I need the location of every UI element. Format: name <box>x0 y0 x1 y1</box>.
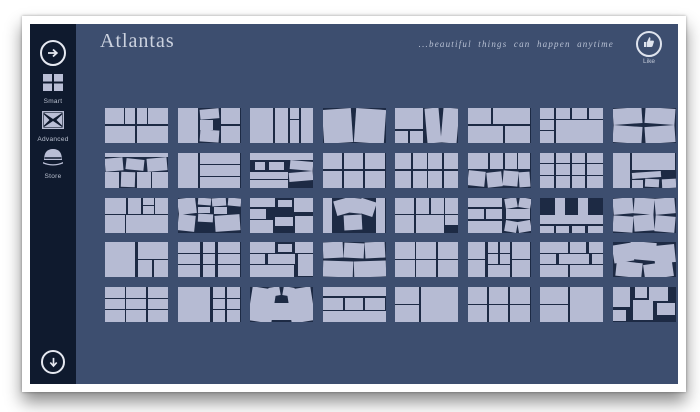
layout-cell <box>344 243 365 259</box>
layout-cell <box>445 215 458 224</box>
layout-cell <box>323 260 354 277</box>
layout-cell <box>444 171 458 188</box>
layout-cell <box>540 287 568 303</box>
layout-cell <box>518 153 531 169</box>
layout-cell <box>556 226 569 233</box>
layout-cell <box>540 254 556 265</box>
collage-layout-tile-layout-30[interactable] <box>468 242 531 277</box>
layout-cell <box>105 157 124 171</box>
layout-cell <box>275 108 288 143</box>
collage-layout-tile-layout-13[interactable] <box>395 153 458 188</box>
layout-cell <box>645 108 676 125</box>
layout-cell <box>503 170 519 187</box>
layout-cell <box>468 198 503 208</box>
collage-layout-tile-layout-33[interactable] <box>105 287 168 322</box>
layout-cell <box>178 108 198 143</box>
layout-cell <box>138 260 152 277</box>
layout-cell <box>376 198 385 233</box>
dome-icon <box>42 147 64 171</box>
collage-layout-tile-layout-07[interactable] <box>540 108 603 143</box>
layout-cell <box>512 260 530 277</box>
layout-cell <box>488 265 510 277</box>
layout-cell <box>588 226 603 233</box>
layout-cell <box>570 242 586 253</box>
layout-cell <box>200 153 241 164</box>
collage-layout-tile-layout-28[interactable] <box>323 242 386 277</box>
layout-cell <box>416 215 444 232</box>
layout-cell <box>250 153 313 160</box>
layout-cell <box>200 165 241 176</box>
layout-cell <box>613 287 631 307</box>
layout-cell <box>559 254 589 265</box>
layout-cell <box>468 242 486 258</box>
layout-cell <box>323 311 386 322</box>
layout-cell <box>275 217 293 225</box>
layout-cell <box>105 287 125 298</box>
layout-cell <box>250 172 288 179</box>
collage-layout-tile-layout-23[interactable] <box>540 198 603 233</box>
collage-layout-tile-layout-21[interactable] <box>395 198 458 233</box>
layout-cell <box>105 215 125 232</box>
layout-cell <box>138 242 168 258</box>
layout-cell <box>301 108 313 143</box>
app-window: Smart Advanced <box>22 16 686 392</box>
layout-cell <box>294 198 313 212</box>
layout-cell <box>152 172 168 187</box>
layout-cell <box>633 215 654 233</box>
sidebar-item-label: Advanced <box>37 136 68 143</box>
layout-cell <box>578 198 588 216</box>
collage-layout-tile-layout-40[interactable] <box>613 287 676 322</box>
layout-cell <box>395 131 408 143</box>
layout-cell <box>199 108 219 119</box>
layout-cell <box>661 178 675 187</box>
layout-cell <box>295 242 313 253</box>
layout-cell <box>468 170 486 187</box>
layout-cell <box>540 153 554 164</box>
layout-cell <box>519 171 531 186</box>
layout-cell <box>178 287 211 322</box>
layout-cell <box>613 153 630 188</box>
layout-cell <box>540 131 554 143</box>
layout-cell <box>653 244 675 264</box>
layout-cell <box>250 180 288 188</box>
layout-cell <box>148 299 168 310</box>
collage-layout-tile-layout-03[interactable] <box>250 108 313 143</box>
layout-cell <box>468 153 489 169</box>
layout-cell <box>227 287 240 298</box>
like-button[interactable]: Like <box>634 31 664 65</box>
collage-layout-tile-layout-01[interactable] <box>105 108 168 143</box>
collage-layout-tile-layout-02[interactable] <box>178 108 241 143</box>
layout-cell <box>395 242 415 258</box>
layout-cell <box>255 162 265 170</box>
layout-cell <box>395 287 419 303</box>
sidebar-item-smart[interactable]: Smart <box>30 74 76 105</box>
layout-cell <box>227 299 240 310</box>
layout-cell <box>155 198 168 214</box>
layout-cell <box>218 265 241 277</box>
layout-cell <box>197 214 212 222</box>
layout-cell <box>587 176 603 188</box>
layout-cell <box>468 209 484 220</box>
layout-cell <box>657 303 676 315</box>
layout-cell <box>395 305 419 322</box>
layout-cell <box>365 171 385 188</box>
collage-layout-tile-layout-18[interactable] <box>178 198 241 233</box>
layout-cell <box>213 299 226 310</box>
layout-cell <box>613 310 627 322</box>
layout-cell <box>416 260 436 277</box>
layout-cell <box>395 198 414 214</box>
layout-cell <box>645 179 659 188</box>
layout-gallery <box>105 108 676 322</box>
arrow-right-icon <box>47 47 59 59</box>
collage-layout-tile-layout-10[interactable] <box>178 153 241 188</box>
layout-cell <box>148 310 168 322</box>
layout-cell <box>126 215 168 232</box>
layout-cell <box>655 198 676 215</box>
bowtie-icon <box>42 111 64 134</box>
collage-layout-tile-layout-37[interactable] <box>395 287 458 322</box>
layout-cell <box>655 215 676 232</box>
layout-cell <box>468 260 486 277</box>
layout-cell <box>128 198 141 214</box>
layout-cell <box>323 298 343 310</box>
layout-cell <box>178 254 201 265</box>
layout-cell <box>143 198 154 206</box>
collage-layout-tile-layout-15[interactable] <box>540 153 603 188</box>
layout-cell <box>540 242 568 253</box>
layout-cell <box>105 108 124 124</box>
layout-cell <box>105 299 125 310</box>
layout-cell <box>556 153 570 164</box>
layout-cell <box>146 157 167 171</box>
collage-layout-tile-layout-05[interactable] <box>395 108 458 143</box>
sidebar-item-label: Store <box>44 173 61 180</box>
layout-cell <box>572 226 586 233</box>
collage-layout-tile-layout-31[interactable] <box>540 242 603 277</box>
collage-layout-tile-layout-12[interactable] <box>323 153 386 188</box>
layout-cell <box>203 242 216 253</box>
layout-cell <box>323 153 343 169</box>
layout-cell <box>592 254 603 265</box>
collage-layout-tile-layout-17[interactable] <box>105 198 168 233</box>
layout-cell <box>105 310 125 322</box>
layout-cell <box>290 108 299 119</box>
layout-cell <box>540 120 554 131</box>
layout-cell <box>269 162 284 170</box>
tagline: ...beautiful things can happen anytime <box>419 39 614 49</box>
layout-cell <box>510 287 530 303</box>
layout-cell <box>250 242 275 253</box>
layout-cell <box>345 298 363 310</box>
layout-cell <box>570 265 603 277</box>
layout-cell <box>416 242 436 258</box>
layout-cell <box>271 303 291 321</box>
layout-cell <box>178 198 197 215</box>
layout-cell <box>635 287 646 298</box>
layout-cell <box>250 265 294 277</box>
layout-cell <box>365 298 385 310</box>
layout-cell <box>218 254 241 265</box>
layout-cell <box>505 198 518 209</box>
layout-cell <box>488 254 498 265</box>
layout-cell <box>105 198 126 214</box>
layout-cell <box>178 153 198 188</box>
layout-cell <box>200 120 214 130</box>
layout-cell <box>413 171 427 188</box>
layout-cell <box>178 265 201 277</box>
layout-cell <box>126 299 146 310</box>
layout-cell <box>468 126 504 143</box>
layout-cell <box>613 108 642 125</box>
like-label: Like <box>643 58 655 65</box>
layout-cell <box>416 198 429 214</box>
layout-cell <box>540 215 603 224</box>
layout-cell <box>540 176 554 188</box>
collage-layout-tile-layout-09[interactable] <box>105 153 168 188</box>
layout-cell <box>268 254 296 264</box>
scroll-down-button[interactable] <box>41 350 65 374</box>
collage-layout-tile-layout-29[interactable] <box>395 242 458 277</box>
page-title: Atlantas <box>100 30 175 53</box>
layout-cell <box>540 164 554 175</box>
layout-cell <box>298 254 313 276</box>
layout-cell <box>504 220 518 233</box>
layout-cell <box>395 171 411 188</box>
layout-cell <box>214 207 227 213</box>
layout-cell <box>632 153 675 170</box>
collage-layout-tile-layout-11[interactable] <box>250 153 313 188</box>
layout-cell <box>489 305 509 322</box>
layout-cell <box>556 164 570 175</box>
layout-cell <box>290 120 299 143</box>
layout-cell <box>203 265 216 277</box>
layout-cell <box>178 214 196 232</box>
sidebar-item-store[interactable]: Store <box>30 147 76 180</box>
collage-layout-tile-layout-35[interactable] <box>250 287 313 322</box>
layout-cell <box>395 108 423 129</box>
layout-cell <box>421 287 458 322</box>
layout-cell <box>431 198 444 214</box>
layout-cell <box>218 242 241 253</box>
layout-cell <box>268 287 281 297</box>
layout-cell <box>105 153 168 157</box>
collage-layout-tile-layout-14[interactable] <box>468 153 531 188</box>
layout-cell <box>203 254 216 265</box>
layout-cell <box>438 242 458 258</box>
layout-cell <box>500 254 510 265</box>
layout-cell <box>510 305 530 322</box>
layout-cell <box>250 198 275 208</box>
layout-cell <box>556 108 570 119</box>
layout-cell <box>212 198 226 206</box>
layout-cell <box>200 177 241 188</box>
collage-layout-tile-layout-19[interactable] <box>250 198 313 233</box>
layout-cell <box>227 310 240 322</box>
layout-cell <box>221 126 241 143</box>
layout-cell <box>365 242 386 259</box>
layout-cell <box>572 176 586 188</box>
layout-cell <box>540 226 554 233</box>
layout-cell <box>282 287 295 297</box>
layout-cell <box>486 171 503 187</box>
layout-cell <box>589 108 603 119</box>
layout-cell <box>468 305 488 322</box>
collage-layout-tile-layout-36[interactable] <box>323 287 386 322</box>
layout-cell <box>354 260 386 277</box>
layout-cell <box>278 244 292 252</box>
layout-cell <box>137 126 169 143</box>
layout-cell <box>587 153 603 164</box>
layout-cell <box>488 242 498 253</box>
layout-cell <box>105 126 135 143</box>
layout-cell <box>505 153 517 169</box>
layout-cell <box>572 108 586 119</box>
layout-cell <box>486 209 502 220</box>
layout-cell <box>323 287 386 296</box>
layout-cell <box>613 215 633 232</box>
layout-cell <box>344 215 362 231</box>
layout-cell <box>105 242 135 277</box>
layout-cell <box>250 220 273 233</box>
layout-cell <box>213 310 226 322</box>
layout-cell <box>410 131 423 143</box>
layout-cell <box>344 153 364 169</box>
layout-cell <box>613 125 643 143</box>
layout-cell <box>556 120 603 143</box>
layout-cell <box>428 171 442 188</box>
layout-cell <box>126 310 146 322</box>
layout-cell <box>441 108 458 143</box>
layout-cell <box>126 287 146 298</box>
layout-cell <box>413 153 427 169</box>
layout-cell <box>120 172 135 188</box>
collage-layout-tile-layout-06[interactable] <box>468 108 531 143</box>
sidebar: Smart Advanced <box>30 24 76 384</box>
layout-cell <box>250 254 265 264</box>
sidebar-item-label: Smart <box>44 98 63 105</box>
layout-cell <box>540 305 568 322</box>
layout-cell <box>395 260 415 277</box>
layout-cell <box>178 242 201 253</box>
layout-cell <box>632 180 643 188</box>
layout-cell <box>295 216 313 232</box>
layout-cell <box>570 287 603 322</box>
layout-cell <box>424 108 441 143</box>
collage-layout-tile-layout-24[interactable] <box>613 198 676 233</box>
layout-cell <box>199 130 219 143</box>
layout-cell <box>505 126 530 143</box>
layout-cell <box>137 108 147 124</box>
layout-cell <box>250 108 273 143</box>
layout-cell <box>290 160 313 171</box>
layout-cell <box>468 221 503 233</box>
layout-cell <box>154 260 168 277</box>
grid-layout-icon <box>43 74 63 96</box>
layout-cell <box>556 176 570 188</box>
layout-cell <box>143 206 154 214</box>
collage-layout-tile-layout-34[interactable] <box>178 287 241 322</box>
layout-cell <box>344 171 364 188</box>
collage-layout-tile-layout-39[interactable] <box>540 287 603 322</box>
layout-cell <box>198 207 211 213</box>
collage-layout-tile-layout-38[interactable] <box>468 287 531 322</box>
layout-cell <box>323 242 344 259</box>
layout-cell <box>250 209 266 219</box>
layout-cell <box>323 108 354 143</box>
collage-layout-tile-layout-22[interactable] <box>468 198 531 233</box>
layout-cell <box>428 153 442 169</box>
collage-layout-tile-layout-20[interactable] <box>323 198 386 233</box>
layout-cell <box>444 153 458 169</box>
collage-layout-tile-layout-08[interactable] <box>613 108 676 143</box>
collage-layout-tile-layout-04[interactable] <box>323 108 386 143</box>
layout-cell <box>572 164 586 175</box>
layout-cell <box>213 287 226 298</box>
layout-cell <box>490 153 503 169</box>
layout-cell <box>197 198 210 206</box>
layout-cell <box>540 108 554 119</box>
layout-cell <box>468 287 488 303</box>
layout-cell <box>468 108 491 124</box>
layout-cell <box>540 265 568 277</box>
layout-cell <box>613 198 633 215</box>
layout-cell <box>105 172 119 187</box>
layout-cell <box>512 242 530 258</box>
layout-cell <box>221 108 241 124</box>
layout-cell <box>633 300 653 320</box>
layout-cell <box>645 125 676 143</box>
layout-cell <box>500 242 510 253</box>
layout-cell <box>395 215 414 232</box>
layout-cell <box>353 108 385 143</box>
layout-cell <box>445 198 458 214</box>
layout-cell <box>489 287 509 303</box>
layout-cell <box>323 171 343 188</box>
layout-cell <box>587 164 603 175</box>
layout-cell <box>215 214 241 232</box>
layout-cell <box>506 209 530 220</box>
layout-cell <box>633 198 654 215</box>
layout-cell <box>616 261 644 278</box>
arrow-down-icon <box>48 357 59 368</box>
layout-cell <box>643 261 674 278</box>
layout-cell <box>228 198 241 207</box>
collage-layout-tile-layout-16[interactable] <box>613 153 676 188</box>
layout-cell <box>572 153 586 164</box>
layout-cell <box>323 198 332 233</box>
layout-cell <box>289 171 313 182</box>
collage-layout-tile-layout-32[interactable] <box>613 242 676 277</box>
layout-cell <box>517 220 530 233</box>
collage-layout-tile-layout-26[interactable] <box>178 242 241 277</box>
layout-cell <box>365 153 385 169</box>
layout-cell <box>125 158 144 170</box>
layout-cell <box>125 108 135 124</box>
thumbs-up-icon <box>643 35 655 53</box>
layout-cell <box>438 260 458 277</box>
layout-cell <box>148 287 168 298</box>
layout-cell <box>589 242 603 253</box>
collage-layout-tile-layout-27[interactable] <box>250 242 313 277</box>
collage-layout-tile-layout-25[interactable] <box>105 242 168 277</box>
layout-cell <box>148 108 168 124</box>
back-button[interactable] <box>40 40 66 66</box>
sidebar-item-advanced[interactable]: Advanced <box>30 111 76 143</box>
layout-cell <box>395 153 411 169</box>
